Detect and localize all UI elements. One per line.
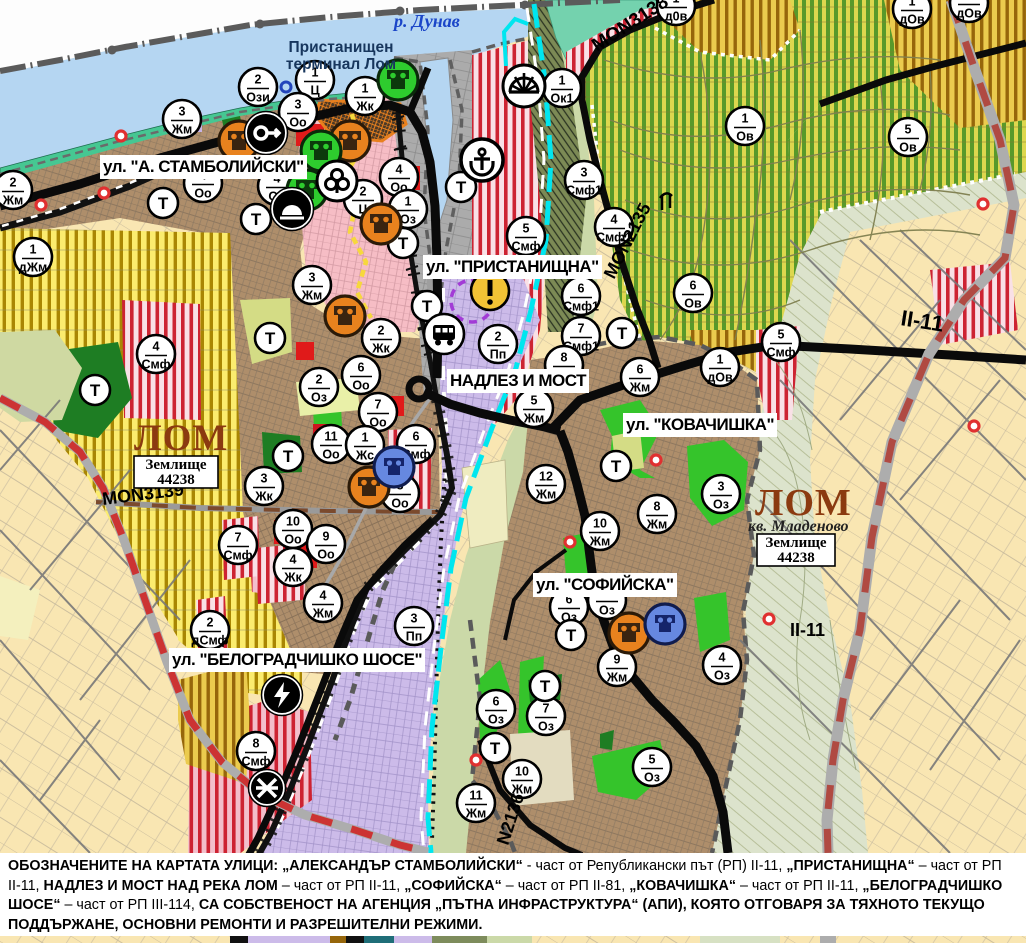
svg-text:3: 3	[179, 105, 186, 119]
svg-text:Смф1: Смф1	[563, 300, 599, 314]
svg-text:Смф: Смф	[511, 240, 540, 254]
svg-text:Т: Т	[90, 381, 101, 400]
svg-text:10: 10	[515, 765, 529, 779]
svg-text:Т: Т	[265, 329, 276, 348]
svg-text:1: 1	[559, 74, 566, 88]
svg-text:дОв: дОв	[956, 7, 982, 21]
svg-text:Жм: Жм	[646, 518, 668, 532]
svg-text:Т: Т	[283, 447, 294, 466]
svg-text:7: 7	[578, 322, 585, 336]
svg-text:3: 3	[261, 472, 268, 486]
svg-text:4: 4	[611, 213, 618, 227]
svg-text:Жм: Жм	[301, 289, 323, 303]
svg-text:4: 4	[719, 651, 726, 665]
svg-text:1: 1	[742, 112, 749, 126]
svg-text:Жс: Жс	[355, 449, 374, 463]
svg-text:1: 1	[405, 195, 412, 209]
svg-text:Землище: Землище	[765, 535, 827, 551]
svg-text:кв. Младеново: кв. Младеново	[748, 518, 849, 535]
svg-text:8: 8	[654, 500, 661, 514]
svg-text:Т: Т	[422, 297, 433, 316]
svg-text:1: 1	[717, 353, 724, 367]
svg-text:ЛОМ: ЛОМ	[134, 418, 228, 459]
svg-text:Смф: Смф	[223, 549, 252, 563]
svg-text:11: 11	[469, 789, 482, 803]
svg-text:Т: Т	[617, 324, 628, 343]
svg-text:6: 6	[578, 282, 585, 296]
svg-text:5: 5	[905, 123, 912, 137]
svg-text:терминал Лом: терминал Лом	[286, 56, 396, 73]
svg-text:2: 2	[316, 373, 323, 387]
svg-text:Ц: Ц	[310, 84, 320, 98]
svg-text:2: 2	[207, 616, 214, 630]
svg-text:Ов: Ов	[899, 141, 917, 155]
svg-text:1: 1	[966, 0, 973, 3]
svg-text:Оо: Оо	[284, 533, 302, 547]
svg-text:4: 4	[320, 589, 327, 603]
svg-text:1: 1	[362, 431, 369, 445]
svg-text:Землище: Землище	[145, 457, 207, 473]
svg-text:2: 2	[10, 176, 17, 190]
svg-text:2: 2	[360, 185, 367, 199]
svg-text:9: 9	[323, 530, 330, 544]
svg-text:Пп: Пп	[490, 348, 507, 362]
svg-text:10: 10	[593, 517, 607, 531]
svg-text:Т: Т	[158, 194, 169, 213]
svg-text:Оз: Оз	[714, 669, 730, 683]
svg-text:дОв: дОв	[707, 371, 733, 385]
svg-text:Жм: Жм	[465, 807, 487, 821]
svg-text:3: 3	[295, 98, 302, 112]
svg-text:7: 7	[375, 398, 382, 412]
svg-text:3: 3	[581, 166, 588, 180]
svg-text:12: 12	[539, 470, 553, 484]
svg-text:Жм: Жм	[312, 607, 334, 621]
svg-text:6: 6	[413, 430, 420, 444]
svg-text:Т: Т	[398, 234, 409, 253]
svg-text:Жм: Жм	[629, 381, 651, 395]
svg-text:Смф: Смф	[241, 755, 270, 769]
svg-text:3: 3	[411, 612, 418, 626]
svg-text:Ок1: Ок1	[551, 92, 574, 106]
svg-text:5: 5	[523, 222, 530, 236]
svg-text:2: 2	[255, 73, 262, 87]
svg-text:Оз: Оз	[488, 713, 504, 727]
svg-text:6: 6	[358, 361, 365, 375]
svg-text:Смф: Смф	[141, 358, 170, 372]
svg-text:6: 6	[493, 695, 500, 709]
svg-text:Жм: Жм	[2, 194, 24, 208]
svg-text:дСмф: дСмф	[192, 634, 229, 648]
svg-text:Жм: Жм	[606, 671, 628, 685]
svg-text:Т: Т	[456, 178, 467, 197]
svg-text:11: 11	[324, 430, 337, 444]
svg-text:Жк: Жк	[283, 571, 302, 585]
svg-text:3: 3	[718, 480, 725, 494]
svg-text:Жм: Жм	[535, 488, 557, 502]
svg-text:5: 5	[778, 328, 785, 342]
svg-text:6: 6	[690, 279, 697, 293]
svg-text:1: 1	[362, 82, 369, 96]
svg-text:7: 7	[543, 702, 550, 716]
svg-text:Жм: Жм	[171, 123, 193, 137]
svg-text:4: 4	[290, 553, 297, 567]
svg-text:2: 2	[495, 330, 502, 344]
svg-text:дОв: дОв	[899, 13, 925, 27]
svg-text:44238: 44238	[157, 472, 195, 488]
svg-text:Оо: Оо	[317, 548, 335, 562]
svg-text:8: 8	[561, 351, 568, 365]
svg-text:5: 5	[531, 394, 538, 408]
svg-text:Жм: Жм	[523, 412, 545, 426]
svg-text:Оз: Оз	[713, 498, 729, 512]
svg-text:Жк: Жк	[254, 490, 273, 504]
svg-text:Оо: Оо	[322, 448, 340, 462]
svg-text:Т: Т	[611, 457, 622, 476]
svg-text:Оо: Оо	[194, 187, 212, 201]
svg-text:Оз: Оз	[599, 604, 615, 618]
svg-text:5: 5	[649, 753, 656, 767]
svg-text:Жк: Жк	[371, 342, 390, 356]
svg-text:Пп: Пп	[406, 630, 423, 644]
svg-text:Жм: Жм	[589, 535, 611, 549]
svg-text:Т: Т	[540, 677, 551, 696]
svg-text:Оо: Оо	[352, 379, 370, 393]
svg-text:10: 10	[286, 515, 300, 529]
svg-text:Ози: Ози	[246, 91, 270, 105]
svg-text:Оз: Оз	[538, 720, 554, 734]
svg-text:Смф: Смф	[766, 346, 795, 360]
svg-text:II-11: II-11	[790, 620, 825, 640]
svg-text:Т: Т	[490, 739, 501, 758]
svg-text:Жк: Жк	[355, 100, 374, 114]
svg-text:2: 2	[378, 324, 385, 338]
svg-text:6: 6	[637, 363, 644, 377]
svg-text:Ов: Ов	[684, 297, 702, 311]
svg-text:Т: Т	[251, 210, 262, 229]
svg-text:Оо: Оо	[391, 497, 409, 511]
svg-text:4: 4	[153, 340, 160, 354]
svg-text:Оз: Оз	[311, 391, 327, 405]
svg-text:р. Дунав: р. Дунав	[392, 11, 460, 31]
svg-text:1: 1	[909, 0, 916, 9]
svg-text:4: 4	[396, 163, 403, 177]
svg-text:9: 9	[614, 653, 621, 667]
svg-text:Т: Т	[566, 626, 577, 645]
svg-text:Смф1: Смф1	[566, 184, 602, 198]
svg-text:Пристанищен: Пристанищен	[289, 39, 394, 56]
svg-text:1: 1	[30, 243, 37, 257]
svg-text:Ов: Ов	[736, 130, 754, 144]
svg-text:7: 7	[235, 531, 242, 545]
svg-text:44238: 44238	[777, 550, 815, 566]
svg-text:8: 8	[253, 737, 260, 751]
svg-text:3: 3	[309, 271, 316, 285]
svg-text:Оз: Оз	[644, 771, 660, 785]
svg-text:1: 1	[673, 0, 680, 6]
svg-text:дЖм: дЖм	[19, 261, 47, 275]
svg-text:Оо: Оо	[289, 116, 307, 130]
